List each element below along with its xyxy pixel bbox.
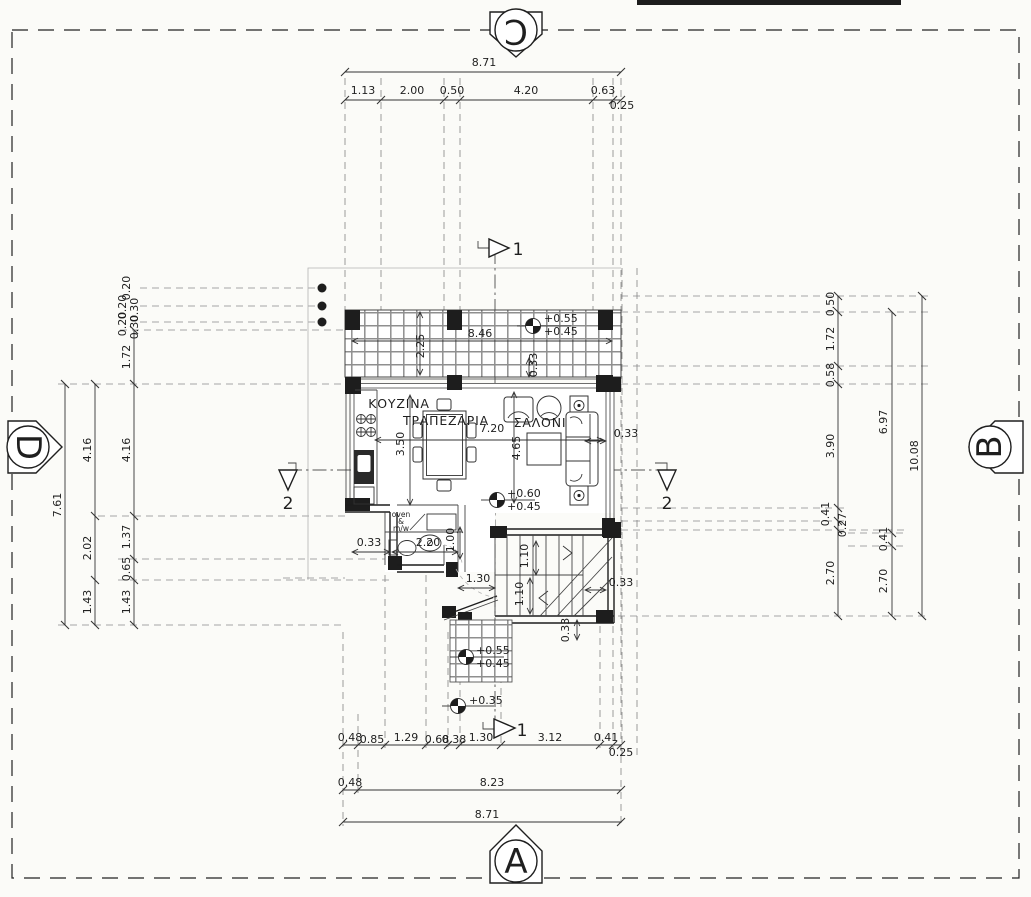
dim-label: 2.00	[400, 84, 425, 97]
dim-label: 0.48	[338, 731, 363, 744]
dim-label: 0.50	[824, 292, 837, 317]
dim-label: 8.71	[472, 56, 497, 69]
dim-label: 1.43	[120, 590, 133, 615]
dim-label: 3.50	[394, 432, 407, 457]
scan-artifact-bar	[637, 0, 901, 5]
room-label: ΤΡΑΠΕΖΑΡΙΑ	[402, 413, 489, 428]
appliance-label: m/w	[393, 524, 409, 533]
column-dots	[318, 284, 327, 327]
dim-label: 0.30	[128, 315, 141, 340]
dim-label: 0.41	[594, 731, 619, 744]
room-label: ΣΑΛΟΝΙ	[514, 415, 567, 430]
dim-label: 1.72	[120, 345, 133, 370]
level-label: +0.45	[476, 657, 510, 670]
dim-label: 1.10	[518, 544, 531, 569]
dim-label: 1.29	[394, 731, 419, 744]
dim-label: 0.85	[360, 733, 385, 746]
room-label: ΚΟΥΖΙΝΑ	[368, 396, 429, 411]
dim-label: 3.90	[824, 434, 837, 459]
elevation-letter: C	[504, 11, 528, 51]
dim-label: 0.38	[442, 733, 467, 746]
dim-label: 4.16	[81, 438, 94, 463]
section-number: 2	[662, 494, 673, 514]
dim-label: 0.58	[824, 363, 837, 388]
level-label: +0.55	[544, 312, 578, 325]
section-number: 2	[283, 494, 294, 514]
dim-label: 0.27	[836, 513, 849, 538]
dim-label: 4.16	[120, 438, 133, 463]
level-label: +0.45	[544, 325, 578, 338]
dim-label: 1.13	[351, 84, 376, 97]
dim-label: 1.30	[469, 731, 494, 744]
level-label: +0.60	[507, 487, 541, 500]
dim-label: 2.70	[824, 561, 837, 586]
dim-label: 2.02	[81, 536, 94, 561]
dim-label: 0.50	[440, 84, 465, 97]
dim-label: 0.33	[357, 536, 382, 549]
dim-label: 0.33	[559, 618, 572, 643]
dim-label: 0.63	[591, 84, 616, 97]
dim-label: 0.33	[609, 576, 634, 589]
dim-label: 0.33	[614, 427, 639, 440]
dim-label: 0.48	[338, 776, 363, 789]
floor-plan-svg: 8.711.132.000.504.200.630.257.614.162.02…	[0, 0, 1031, 897]
dim-label: 4.20	[514, 84, 539, 97]
dim-label: 8.71	[475, 808, 500, 821]
elevation-letter: D	[8, 434, 48, 460]
dim-label: 8.46	[468, 327, 493, 340]
dim-label: 0.33	[527, 353, 540, 378]
dim-label: 0.41	[877, 527, 890, 552]
elevation-letter: B	[970, 435, 1010, 458]
dim-label: 10.08	[908, 440, 921, 472]
level-label: +0.55	[476, 644, 510, 657]
dim-label: 0.25	[609, 746, 634, 759]
dim-label: 6.97	[877, 410, 890, 435]
dim-label: 1.43	[81, 590, 94, 615]
dim-label: 3.12	[538, 731, 563, 744]
level-label: +0.45	[507, 500, 541, 513]
dim-label: 2.25	[414, 334, 427, 359]
dim-label: 4.65	[510, 436, 523, 461]
elevation-letter: A	[504, 842, 527, 882]
dim-label: 1.37	[120, 525, 133, 550]
veranda	[345, 310, 621, 377]
dim-label: 8.23	[480, 776, 505, 789]
dim-label: 1.10	[513, 582, 526, 607]
section-number: 1	[517, 721, 528, 741]
dim-label: 2.70	[877, 569, 890, 594]
dim-label: 0.41	[819, 502, 832, 527]
dim-label: 1.00	[444, 528, 457, 553]
section-number: 1	[513, 240, 524, 260]
dim-label: 7.61	[51, 493, 64, 518]
dim-label: 0.25	[610, 99, 635, 112]
dim-label: 0.65	[120, 557, 133, 582]
dim-label: 1.72	[824, 327, 837, 352]
dim-label: 2.20	[416, 536, 441, 549]
dim-label: 1.30	[466, 572, 491, 585]
level-label: +0.35	[469, 694, 503, 707]
drawing-sheet: 8.711.132.000.504.200.630.257.614.162.02…	[0, 0, 1031, 897]
